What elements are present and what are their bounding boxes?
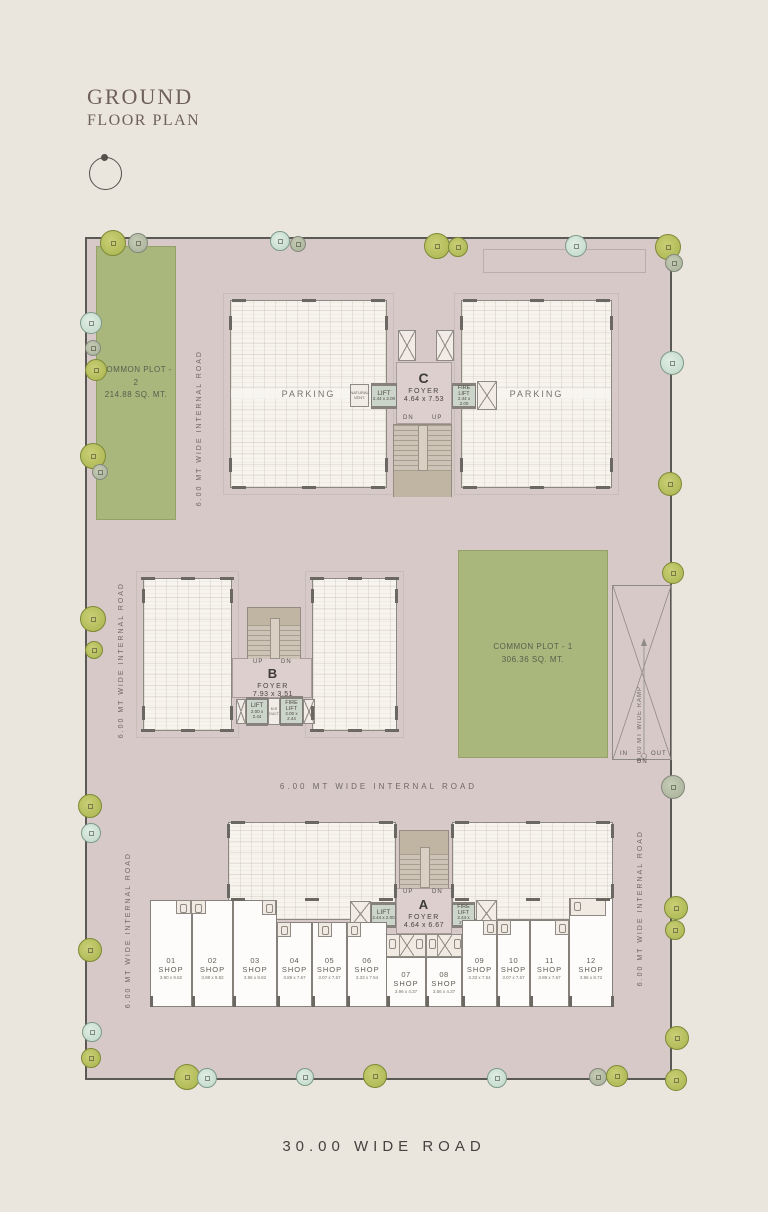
toilet-icon bbox=[262, 900, 276, 915]
common-plot-2-label: COMMON PLOT - 2 214.88 SQ. MT. bbox=[97, 364, 175, 402]
ground-floor-plan: GROUND FLOOR PLAN COMMON PLOT - 2 214.88… bbox=[0, 0, 768, 1212]
tower-a-toilet-block-2 bbox=[426, 934, 462, 957]
shop-type: SHOP bbox=[387, 979, 425, 988]
wall-tick bbox=[385, 577, 399, 580]
toilet-icon bbox=[277, 922, 291, 937]
tree-icon bbox=[448, 237, 468, 257]
shop-size: 3.33 x 7.54 bbox=[463, 975, 496, 980]
wall-tick bbox=[455, 898, 469, 901]
shop-unit-03: 03 SHOP 3.96 x 9.82 bbox=[233, 900, 277, 1007]
wall-tick bbox=[229, 458, 232, 472]
shop-type: SHOP bbox=[463, 965, 496, 974]
tree-icon bbox=[270, 231, 290, 251]
tower-a-dn-label: DN bbox=[432, 889, 443, 895]
wall-tick bbox=[302, 486, 316, 489]
shop-size: 3.89 x 7.67 bbox=[278, 975, 311, 980]
wall-tick bbox=[371, 299, 385, 302]
tree-icon bbox=[81, 1048, 101, 1068]
tree-icon bbox=[78, 938, 102, 962]
ramp-out-label: OUT bbox=[651, 751, 667, 757]
tree-icon bbox=[100, 230, 126, 256]
tree-icon bbox=[424, 233, 450, 259]
shop-number: 07 bbox=[387, 970, 425, 979]
ramp-area: 6.00 MT WIDE RAMP IN OUT DN bbox=[612, 585, 672, 760]
wall-tick bbox=[530, 486, 544, 489]
shop-label: 05 SHOP 3.07 x 7.67 bbox=[313, 956, 346, 980]
wall-tick bbox=[462, 996, 465, 1007]
tower-c-core-label: C FOYER 4.64 x 7.53 bbox=[398, 370, 450, 403]
shop-number: 08 bbox=[427, 970, 461, 979]
tree-icon bbox=[197, 1068, 217, 1088]
toilet-icon bbox=[318, 922, 332, 937]
wall-tick bbox=[526, 898, 540, 901]
common-plot-1-name: COMMON PLOT - 1 bbox=[493, 641, 572, 654]
wall-tick bbox=[141, 577, 155, 580]
common-plot-2-name: COMMON PLOT - 2 bbox=[97, 364, 175, 390]
wall-tick bbox=[277, 996, 280, 1007]
setback-outline-top-right bbox=[483, 249, 646, 273]
tower-c-duct-icon-1 bbox=[398, 330, 416, 361]
tree-icon bbox=[82, 1022, 102, 1042]
wall-tick bbox=[611, 884, 614, 898]
wall-tick bbox=[220, 729, 234, 732]
wall-tick bbox=[385, 458, 388, 472]
tree-icon bbox=[363, 1064, 387, 1088]
shop-number: 01 bbox=[151, 956, 191, 965]
wall-tick bbox=[530, 996, 533, 1007]
common-plot-2-area: 214.88 SQ. MT. bbox=[97, 389, 175, 402]
shop-type: SHOP bbox=[348, 965, 386, 974]
tree-icon bbox=[487, 1068, 507, 1088]
toilet-icon bbox=[427, 935, 438, 956]
tree-icon bbox=[290, 236, 306, 252]
common-plot-1-area: 306.36 SQ. MT. bbox=[493, 654, 572, 667]
wall-tick bbox=[596, 486, 610, 489]
tower-a-letter: A bbox=[398, 897, 450, 912]
wall-tick bbox=[530, 299, 544, 302]
shop-label: 06 SHOP 3.33 x 7.54 bbox=[348, 956, 386, 980]
tower-b-stair-divider bbox=[270, 618, 280, 659]
common-plot-2: COMMON PLOT - 2 214.88 SQ. MT. bbox=[96, 246, 176, 520]
wall-tick bbox=[232, 486, 246, 489]
shop-number: 04 bbox=[278, 956, 311, 965]
shop-type: SHOP bbox=[313, 965, 346, 974]
tower-b-mr-duct: M.R DUCT bbox=[268, 698, 280, 725]
shop-unit-08: 08 SHOP 3.56 x 4.37 bbox=[426, 957, 462, 1007]
wall-tick bbox=[348, 729, 362, 732]
shop-unit-02: 02 SHOP 3.98 x 9.82 bbox=[192, 900, 233, 1007]
tower-b-core-label: B FOYER 7.93 x 3.51 bbox=[246, 666, 300, 698]
shop-size: 3.07 x 7.67 bbox=[498, 975, 529, 980]
tower-c-fire-lift: FIRE LIFT 2.44 x 2.00 bbox=[452, 383, 476, 409]
tower-a-foyer-label: FOYER bbox=[398, 914, 450, 921]
shop-label: 01 SHOP 3.90 x 9.82 bbox=[151, 956, 191, 980]
tower-c-up-label: UP bbox=[432, 415, 442, 421]
wall-tick bbox=[460, 458, 463, 472]
shop-size: 3.89 x 7.67 bbox=[531, 975, 568, 980]
internal-road-label-right: 6.00 MT WIDE INTERNAL ROAD bbox=[637, 830, 644, 986]
shop-size: 3.33 x 7.54 bbox=[348, 975, 386, 980]
toilet-icon bbox=[452, 935, 462, 956]
wall-tick bbox=[310, 729, 324, 732]
wall-tick bbox=[141, 729, 155, 732]
wall-tick bbox=[455, 821, 469, 824]
shop-number: 05 bbox=[313, 956, 346, 965]
tree-icon bbox=[662, 562, 684, 584]
tree-icon bbox=[665, 1069, 687, 1091]
wall-tick bbox=[596, 299, 610, 302]
main-road-label: 30.00 WIDE ROAD bbox=[0, 1138, 768, 1155]
wall-tick bbox=[181, 729, 195, 732]
wall-tick bbox=[305, 898, 319, 901]
tree-icon bbox=[85, 359, 107, 381]
tree-icon bbox=[565, 235, 587, 257]
shop-label: 04 SHOP 3.89 x 7.67 bbox=[278, 956, 311, 980]
tower-b-fire-lift-size: 2.00 x 2.44 bbox=[281, 712, 302, 722]
duct-icon bbox=[400, 935, 414, 956]
shop-label: 07 SHOP 3.96 x 4.37 bbox=[387, 970, 425, 994]
wall-tick bbox=[150, 996, 153, 1007]
shop-size: 3.96 x 9.82 bbox=[234, 975, 276, 980]
shop-type: SHOP bbox=[151, 965, 191, 974]
wall-tick bbox=[394, 884, 397, 898]
tower-b-staircase bbox=[247, 607, 301, 659]
wall-tick bbox=[610, 316, 613, 330]
wall-tick bbox=[371, 486, 385, 489]
wall-tick bbox=[231, 898, 245, 901]
shop-label: 03 SHOP 3.96 x 9.82 bbox=[234, 956, 276, 980]
tree-icon bbox=[665, 1026, 689, 1050]
wall-tick bbox=[379, 821, 393, 824]
wall-tick bbox=[220, 577, 234, 580]
tower-a-lift-size: 2.44 x 2.00 bbox=[372, 916, 394, 921]
wall-tick bbox=[379, 898, 393, 901]
wall-tick bbox=[192, 996, 195, 1007]
page-title-line1: GROUND bbox=[87, 84, 200, 110]
tower-b-lift: LIFT 2.00 x 2.44 bbox=[246, 697, 268, 726]
wall-tick bbox=[312, 996, 315, 1007]
toilet-icon bbox=[414, 935, 426, 956]
tower-b-right-wing bbox=[312, 578, 397, 731]
tree-icon bbox=[80, 606, 106, 632]
shop-type: SHOP bbox=[498, 965, 529, 974]
shop-number: 11 bbox=[531, 956, 568, 965]
shop-number: 02 bbox=[193, 956, 232, 965]
wall-tick bbox=[227, 884, 230, 898]
tree-icon bbox=[80, 312, 102, 334]
tower-c-dn-label: DN bbox=[403, 415, 414, 421]
wall-tick bbox=[302, 299, 316, 302]
wall-tick bbox=[347, 996, 350, 1007]
wall-tick bbox=[142, 589, 145, 603]
tree-icon bbox=[92, 464, 108, 480]
tower-b-letter: B bbox=[246, 666, 300, 681]
shop-label: 10 SHOP 3.07 x 7.67 bbox=[498, 956, 529, 980]
internal-road-label-horizontal: 6.00 MT WIDE INTERNAL ROAD bbox=[85, 782, 672, 791]
shop-number: 06 bbox=[348, 956, 386, 965]
tree-icon bbox=[589, 1068, 607, 1086]
shop-type: SHOP bbox=[234, 965, 276, 974]
wall-tick bbox=[233, 996, 236, 1007]
tower-c-letter: C bbox=[398, 370, 450, 386]
tower-b-duct-icon-1 bbox=[236, 699, 246, 724]
wall-tick bbox=[497, 996, 500, 1007]
wall-tick bbox=[230, 589, 233, 603]
shop-unit-07: 07 SHOP 3.96 x 4.37 bbox=[386, 957, 426, 1007]
ramp-dn-label: DN bbox=[637, 759, 648, 765]
shop-type: SHOP bbox=[570, 965, 612, 974]
shop-label: 08 SHOP 3.56 x 4.37 bbox=[427, 970, 461, 994]
wall-tick bbox=[395, 706, 398, 720]
wall-tick bbox=[451, 884, 454, 898]
wall-tick bbox=[451, 824, 454, 838]
tree-icon bbox=[658, 472, 682, 496]
wall-tick bbox=[229, 316, 232, 330]
wall-tick bbox=[305, 821, 319, 824]
tower-a-foyer-size: 4.64 x 6.67 bbox=[398, 922, 450, 929]
wall-tick bbox=[230, 706, 233, 720]
wall-tick bbox=[611, 824, 614, 838]
shop-size: 3.98 x 9.82 bbox=[193, 975, 232, 980]
tree-icon bbox=[85, 340, 101, 356]
wall-tick bbox=[232, 299, 246, 302]
tower-b-dn-label: DN bbox=[281, 659, 292, 665]
ramp-in-label: IN bbox=[620, 751, 628, 757]
tower-c-foyer-size: 4.64 x 7.53 bbox=[398, 396, 450, 403]
wall-tick bbox=[460, 316, 463, 330]
shop-number: 09 bbox=[463, 956, 496, 965]
wall-tick bbox=[385, 729, 399, 732]
shop-label: 11 SHOP 3.89 x 7.67 bbox=[531, 956, 568, 980]
wall-tick bbox=[227, 824, 230, 838]
shop-type: SHOP bbox=[193, 965, 232, 974]
north-indicator-dot bbox=[101, 154, 108, 161]
north-indicator-icon bbox=[89, 157, 122, 190]
shop-type: SHOP bbox=[531, 965, 568, 974]
toilet-icon bbox=[555, 920, 569, 935]
tower-c-fire-lift-size: 2.44 x 2.00 bbox=[453, 397, 475, 407]
tower-b-foyer-label: FOYER bbox=[246, 683, 300, 690]
shop-type: SHOP bbox=[427, 979, 461, 988]
wall-tick bbox=[395, 589, 398, 603]
ramp-label: 6.00 MT WIDE RAMP bbox=[637, 686, 643, 761]
tower-c-duct-icon-2 bbox=[436, 330, 454, 361]
tower-c-stair-landing bbox=[394, 471, 451, 497]
shop-size: 3.90 x 9.82 bbox=[151, 975, 191, 980]
tower-a-toilet-block-1 bbox=[386, 934, 426, 957]
wall-tick bbox=[611, 996, 614, 1007]
wall-tick bbox=[610, 458, 613, 472]
tower-c-lift-size: 2.44 x 2.00 bbox=[373, 397, 395, 402]
wall-tick bbox=[311, 706, 314, 720]
tree-icon bbox=[660, 351, 684, 375]
shop-number: 03 bbox=[234, 956, 276, 965]
tower-b-lift-size: 2.00 x 2.44 bbox=[247, 710, 267, 720]
tree-icon bbox=[128, 233, 148, 253]
wall-tick bbox=[463, 299, 477, 302]
toilet-icon bbox=[497, 920, 511, 935]
tree-icon bbox=[78, 794, 102, 818]
wall-tick bbox=[142, 706, 145, 720]
tower-c-foyer-label: FOYER bbox=[398, 388, 450, 395]
tower-a-staircase bbox=[399, 830, 449, 888]
tree-icon bbox=[81, 823, 101, 843]
tower-c-lift: LIFT 2.44 x 2.00 bbox=[371, 383, 397, 409]
tree-icon bbox=[665, 920, 685, 940]
page-title: GROUND FLOOR PLAN bbox=[87, 84, 200, 130]
shop-number: 10 bbox=[498, 956, 529, 965]
tree-icon bbox=[296, 1068, 314, 1086]
internal-road-label-left-bottom: 6.00 MT WIDE INTERNAL ROAD bbox=[125, 852, 132, 1008]
toilet-icon bbox=[347, 922, 361, 937]
tree-icon bbox=[85, 641, 103, 659]
tree-icon bbox=[661, 775, 685, 799]
toilet-icon bbox=[191, 900, 206, 914]
shop-type: SHOP bbox=[278, 965, 311, 974]
wall-tick bbox=[526, 821, 540, 824]
wall-tick bbox=[348, 577, 362, 580]
shop-size: 3.96 x 4.37 bbox=[387, 989, 425, 994]
tower-a-up-label: UP bbox=[403, 889, 413, 895]
tower-a-stair-divider bbox=[420, 847, 430, 888]
wall-tick bbox=[311, 589, 314, 603]
wall-tick bbox=[231, 821, 245, 824]
toilet-icon bbox=[176, 900, 191, 914]
wall-tick bbox=[463, 486, 477, 489]
shop-label: 09 SHOP 3.33 x 7.54 bbox=[463, 956, 496, 980]
tree-icon bbox=[606, 1065, 628, 1087]
wall-tick bbox=[387, 996, 390, 1007]
shop-unit-01: 01 SHOP 3.90 x 9.82 bbox=[150, 900, 192, 1007]
shop-label: 12 SHOP 3.96 x 8.72 bbox=[570, 956, 612, 980]
wall-tick bbox=[394, 824, 397, 838]
tower-b-up-label: UP bbox=[253, 659, 263, 665]
shop-size: 3.96 x 8.72 bbox=[570, 975, 612, 980]
common-plot-1-label: COMMON PLOT - 1 306.36 SQ. MT. bbox=[493, 641, 572, 667]
tower-c-duct-icon-3 bbox=[477, 381, 497, 410]
tower-c-stair-divider bbox=[418, 425, 428, 471]
tower-c-vent-box: NATURAL VENT. bbox=[350, 384, 369, 407]
tower-b-fire-lift: FIRE LIFT 2.00 x 2.44 bbox=[280, 696, 303, 726]
tower-c-staircase bbox=[393, 424, 452, 497]
shop-size: 3.07 x 7.67 bbox=[313, 975, 346, 980]
page-title-line2: FLOOR PLAN bbox=[87, 112, 200, 130]
wall-tick bbox=[596, 898, 610, 901]
wall-tick bbox=[385, 316, 388, 330]
toilet-icon bbox=[483, 920, 497, 935]
shop-number: 12 bbox=[570, 956, 612, 965]
common-plot-1: COMMON PLOT - 1 306.36 SQ. MT. bbox=[458, 550, 608, 758]
tower-a-core-label: A FOYER 4.64 x 6.67 bbox=[398, 897, 450, 929]
wall-tick bbox=[310, 577, 324, 580]
wall-tick bbox=[181, 577, 195, 580]
wall-tick bbox=[426, 996, 429, 1007]
toilet-icon bbox=[387, 935, 400, 956]
tree-icon bbox=[664, 896, 688, 920]
internal-road-label-left-top: 6.00 MT WIDE INTERNAL ROAD bbox=[196, 350, 203, 506]
tree-icon bbox=[665, 254, 683, 272]
shop-size: 3.56 x 4.37 bbox=[427, 989, 461, 994]
wall-tick bbox=[569, 996, 572, 1007]
wall-tick bbox=[596, 821, 610, 824]
tower-b-left-wing bbox=[143, 578, 232, 731]
duct-icon bbox=[438, 935, 452, 956]
shop-label: 02 SHOP 3.98 x 9.82 bbox=[193, 956, 232, 980]
internal-road-label-left-mid: 6.00 MT WIDE INTERNAL ROAD bbox=[118, 582, 125, 738]
